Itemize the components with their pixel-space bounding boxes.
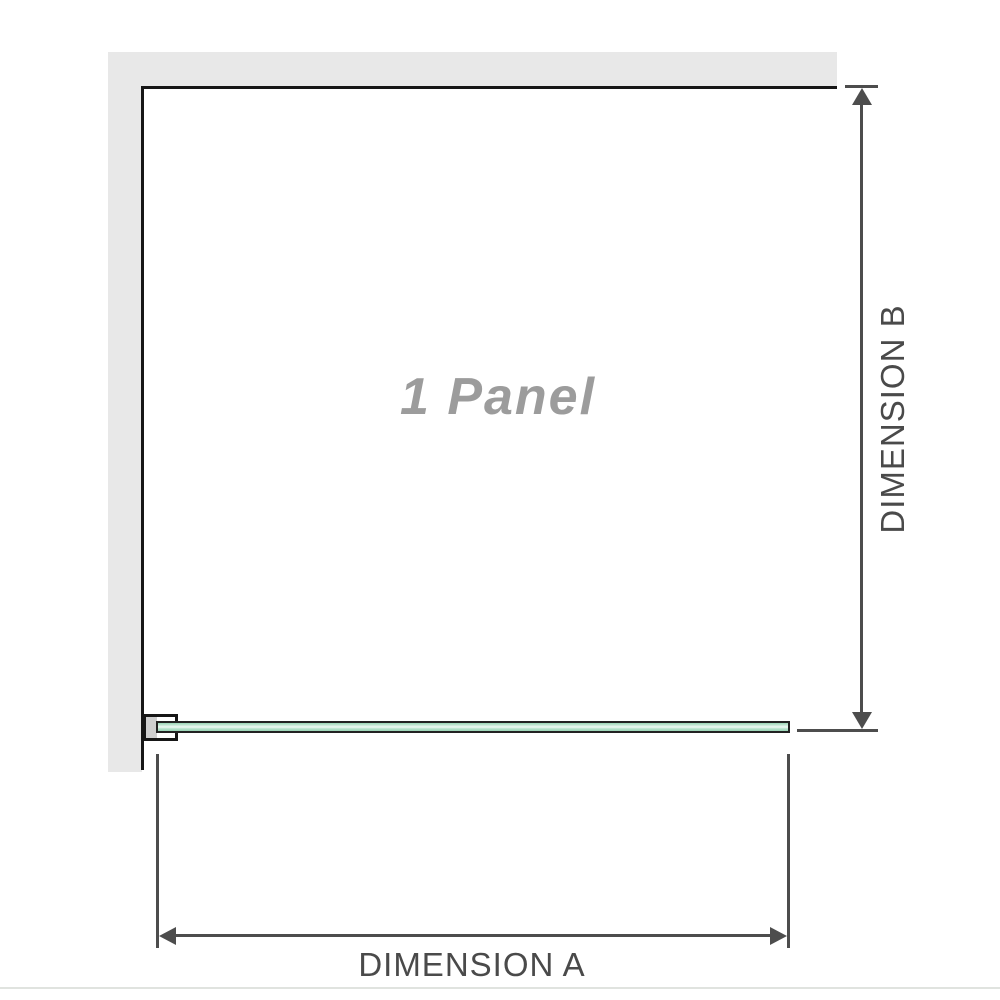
dimension-b-label: DIMENSION B	[874, 304, 912, 533]
dimension-b-line	[860, 100, 863, 716]
dimension-a-extension-left	[156, 754, 159, 948]
dimension-b-arrow-up-icon	[852, 88, 872, 105]
shower-panel-diagram: 1 Panel DIMENSION B DIMENSION A	[0, 0, 1000, 1000]
dimension-b-cap-bottom	[797, 729, 878, 732]
dimension-b-arrow-down-icon	[852, 712, 872, 729]
dimension-a-arrow-right-icon	[770, 927, 787, 945]
dimension-a-extension-right	[787, 754, 790, 948]
wall-left	[108, 52, 142, 772]
glass-panel	[156, 721, 790, 733]
panel-label: 1 Panel	[400, 367, 596, 427]
wall-top	[108, 52, 837, 87]
dimension-a-line	[172, 934, 774, 937]
panel-outline-left	[141, 86, 144, 770]
dimension-a-arrow-left-icon	[159, 927, 176, 945]
baseline-rule	[0, 987, 1000, 989]
dimension-a-label: DIMENSION A	[358, 946, 585, 984]
panel-outline-top	[141, 86, 837, 89]
